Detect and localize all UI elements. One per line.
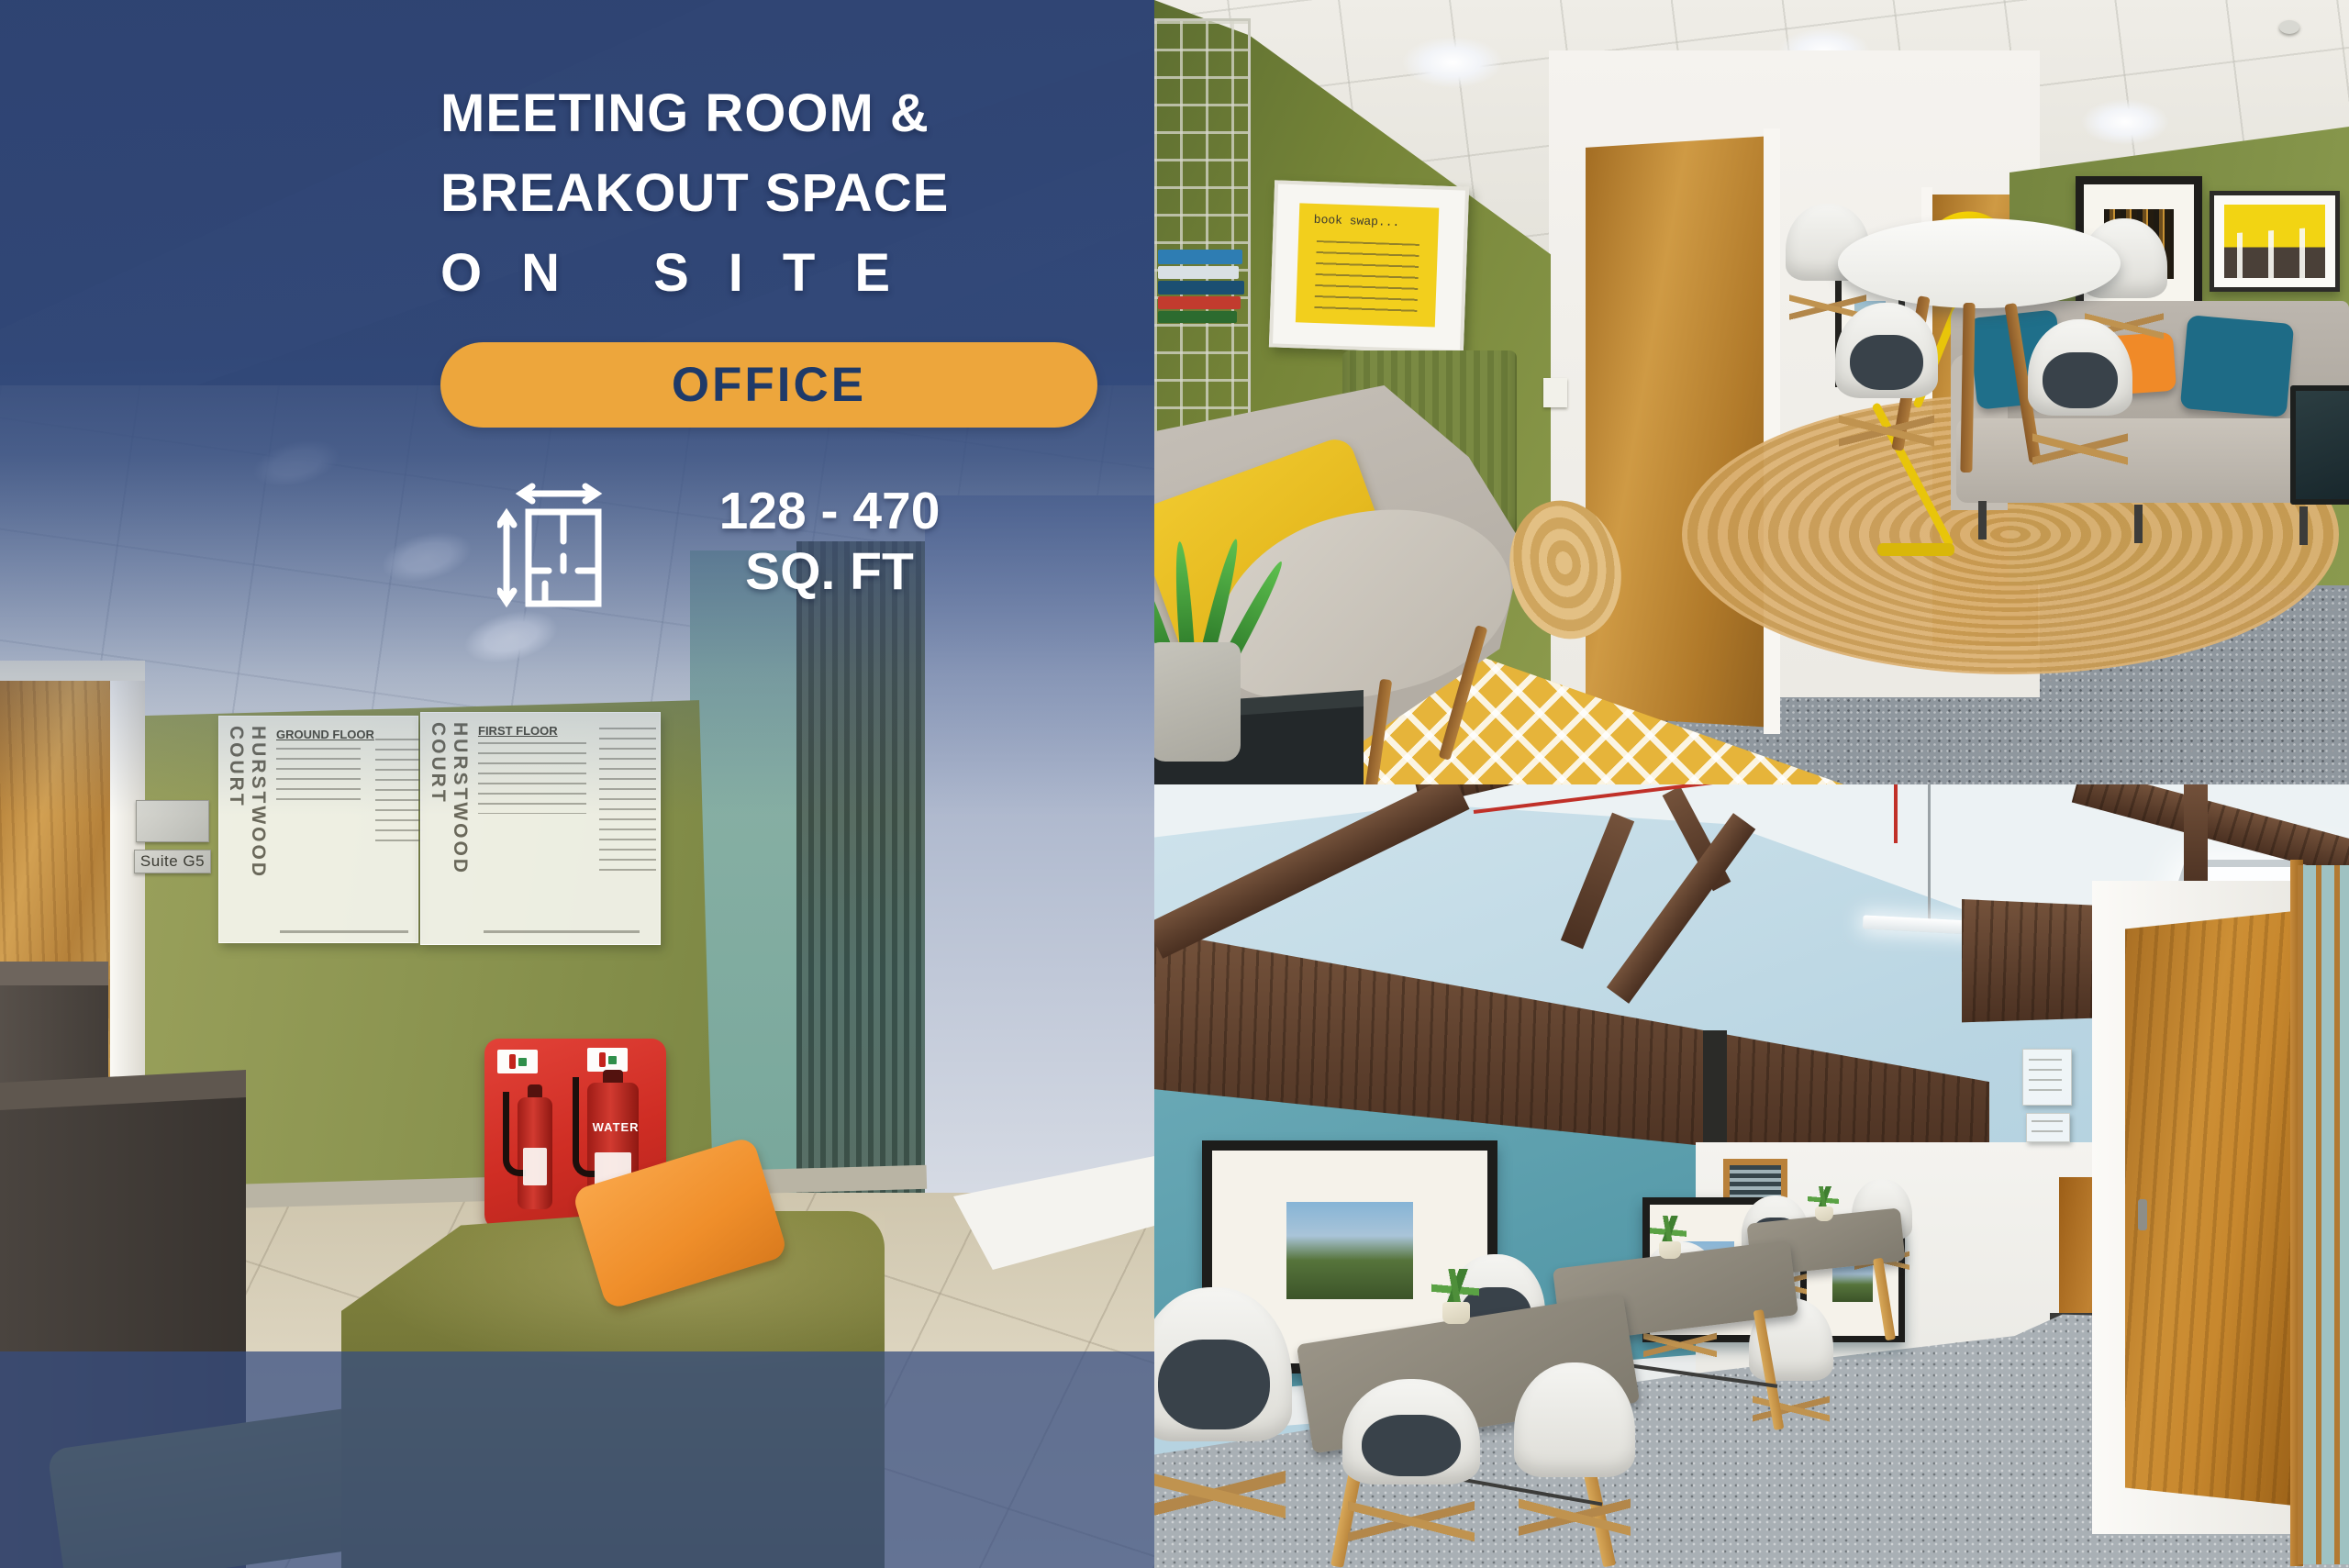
white-chair — [1154, 1287, 1292, 1562]
lamp-base — [1877, 543, 1954, 556]
red-sprinkler-drop — [1894, 784, 1898, 843]
book-spine — [1158, 266, 1239, 279]
white-chair — [1342, 1379, 1480, 1568]
book-spine — [1158, 281, 1244, 295]
door-handle — [2138, 1199, 2147, 1230]
headline-line-1: MEETING ROOM & — [440, 73, 1097, 153]
roof-post — [2184, 784, 2208, 896]
book-spine — [1158, 250, 1242, 264]
book-spine — [1158, 311, 1237, 323]
book-swap-frame: book swap... — [1269, 180, 1469, 353]
headline: MEETING ROOM & BREAKOUT SPACE ON SITE — [440, 73, 1097, 313]
light-hanger-wire — [1928, 784, 1931, 924]
yellow-art-frame — [2210, 191, 2340, 292]
category-badge: OFFICE — [440, 342, 1097, 428]
door-architrave — [1764, 128, 1780, 734]
flyer-canvas: Suite G5 HURSTWOOD COURT GROUND FLOOR HU… — [0, 0, 2349, 1568]
ceiling-light — [2081, 99, 2169, 145]
floor-plan-dimensions-icon — [497, 481, 606, 611]
black-side-table — [2290, 385, 2349, 505]
meeting-room-photo — [1154, 784, 2349, 1568]
chair-shell — [2028, 319, 2132, 416]
sofa-leg — [1978, 501, 1987, 539]
size-range: 128 - 470 — [628, 481, 1031, 541]
chair-legs — [1154, 1425, 1286, 1562]
plant-pot — [1815, 1207, 1833, 1221]
ceiling-light — [1402, 37, 1503, 88]
concrete-plant-pot — [1154, 642, 1241, 762]
teal-cushion — [2180, 315, 2294, 417]
breakout-space-photo: book swap... — [1154, 0, 2349, 784]
framed-landscape-photo — [1286, 1202, 1413, 1300]
smoke-detector — [2279, 20, 2299, 34]
chair-shell — [1342, 1379, 1480, 1485]
chair-shell — [1154, 1287, 1292, 1441]
oak-office-door — [2125, 911, 2294, 1506]
sofa-leg — [2299, 506, 2308, 545]
sign-text-lines — [2032, 1120, 2063, 1135]
category-badge-label: OFFICE — [672, 357, 866, 413]
size-text: 128 - 470 SQ. FT — [628, 481, 1031, 602]
headline-line-3: ON SITE — [440, 233, 1097, 313]
door-grain — [2125, 911, 2294, 1506]
chair-legs — [2032, 406, 2129, 492]
chair-legs — [1348, 1473, 1475, 1568]
left-panel: Suite G5 HURSTWOOD COURT GROUND FLOOR HU… — [0, 0, 1154, 1568]
poster-text-lines — [1314, 240, 1419, 314]
chair-legs — [1519, 1465, 1630, 1568]
white-chair-black-pad — [2028, 319, 2132, 492]
plant-pot — [1659, 1241, 1681, 1259]
blue-bottom-band-overlay — [0, 1351, 1154, 1568]
headline-line-2: BREAKOUT SPACE — [440, 153, 1097, 233]
sofa-leg — [2134, 505, 2143, 543]
beam-metal-bracket — [1703, 1030, 1727, 1151]
round-table — [1838, 218, 2121, 308]
suite-sign-plate — [2026, 1113, 2070, 1142]
size-info-row: 128 - 470 SQ. FT — [440, 481, 1097, 611]
suite-sign-plate — [2022, 1049, 2072, 1106]
light-switch — [1543, 378, 1567, 407]
chair-legs — [1839, 388, 1933, 473]
flyer-content: MEETING ROOM & BREAKOUT SPACE ON SITE OF… — [440, 73, 1097, 611]
size-unit: SQ. FT — [628, 541, 1031, 602]
chair-shell — [1835, 303, 1938, 398]
plant-pot — [1442, 1302, 1470, 1324]
sign-text-lines — [2029, 1059, 2062, 1094]
book-swap-poster: book swap... — [1296, 203, 1439, 327]
oak-door — [1586, 136, 1773, 728]
book-spine — [1158, 296, 1241, 309]
white-chair-black-pad — [1835, 303, 1938, 473]
white-chair — [1514, 1362, 1635, 1568]
poster-title: book swap... — [1314, 213, 1439, 231]
chair-shell — [1514, 1362, 1635, 1477]
glazed-oak-partition — [2298, 865, 2349, 1564]
